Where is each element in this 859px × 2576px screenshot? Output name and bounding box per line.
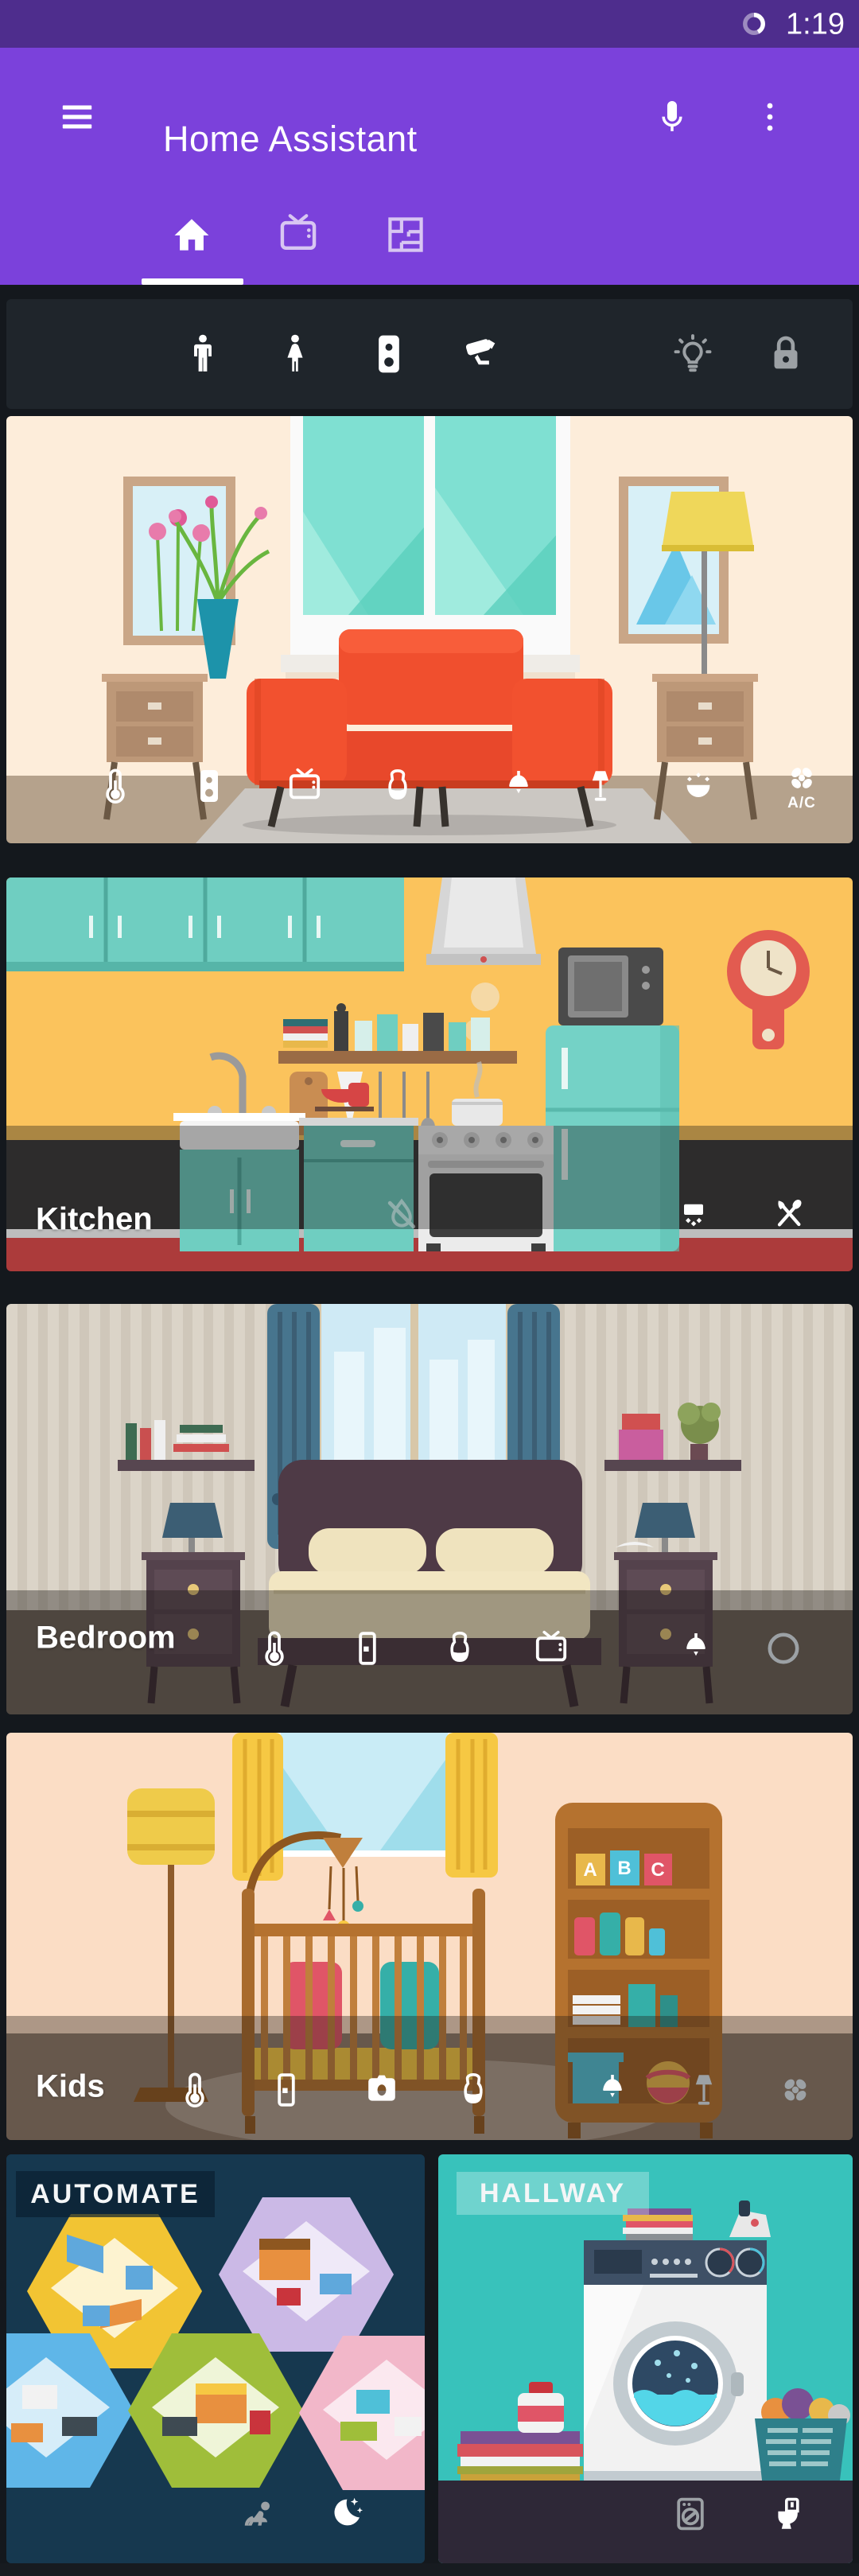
tv-icon[interactable] <box>286 767 324 805</box>
lock-icon[interactable] <box>764 332 808 376</box>
pendant-light-icon[interactable] <box>593 2071 632 2109</box>
thermometer-icon[interactable] <box>176 2071 214 2109</box>
person-female-icon[interactable] <box>273 332 317 376</box>
room-card-bedroom[interactable]: Bedroom <box>6 1304 853 1714</box>
ac-fan-icon[interactable]: A/C <box>783 760 821 820</box>
pendant-light-icon[interactable] <box>499 767 538 805</box>
thermometer-icon[interactable] <box>96 767 134 805</box>
fan-icon[interactable] <box>776 2071 814 2109</box>
kids-illustration <box>6 1733 853 2140</box>
pendant-light-icon[interactable] <box>677 1629 715 1667</box>
room-label: Kitchen <box>36 1202 153 1238</box>
smart-speaker-icon[interactable] <box>379 767 417 805</box>
tab-home[interactable] <box>169 212 214 257</box>
thermometer-icon[interactable] <box>255 1629 293 1667</box>
toilet-icon[interactable] <box>767 2495 805 2533</box>
entity-toolbar <box>6 299 853 409</box>
smart-speaker-icon[interactable] <box>454 2071 492 2109</box>
circle-outline-icon[interactable] <box>764 1629 803 1667</box>
card-automate[interactable]: AUTOMATE <box>6 2154 425 2563</box>
tv-icon[interactable] <box>532 1629 570 1667</box>
baby-icon[interactable] <box>238 2495 276 2533</box>
night-mode-icon[interactable] <box>326 2495 364 2533</box>
washing-machine-icon[interactable] <box>671 2495 709 2533</box>
room-label: Kids <box>36 2069 105 2105</box>
automate-banner: AUTOMATE <box>16 2171 215 2217</box>
status-time: 1:19 <box>786 8 845 42</box>
sensor-icon[interactable] <box>190 767 228 805</box>
microphone-icon[interactable] <box>652 97 692 137</box>
smart-speaker-icon[interactable] <box>441 1629 479 1667</box>
ac-label: A/C <box>783 795 821 812</box>
page-title: Home Assistant <box>163 119 418 160</box>
door-sensor-icon[interactable] <box>267 2071 305 2109</box>
room-card-living-room[interactable]: A/C <box>6 416 853 843</box>
cctv-camera-icon[interactable] <box>460 332 504 376</box>
range-hood-icon[interactable] <box>674 1196 713 1234</box>
sconce-light-icon[interactable] <box>679 767 717 805</box>
overflow-menu-icon[interactable] <box>751 98 789 136</box>
automate-label: AUTOMATE <box>30 2179 200 2210</box>
page-background <box>0 2563 859 2576</box>
room-card-kitchen[interactable]: Kitchen <box>6 877 853 1271</box>
tab-media[interactable] <box>276 212 321 257</box>
status-bar: 1:19 <box>0 0 859 48</box>
sensor-icon[interactable] <box>367 332 411 376</box>
cutlery-icon[interactable] <box>770 1196 808 1234</box>
lightbulb-icon[interactable] <box>670 332 715 376</box>
water-off-icon[interactable] <box>383 1196 421 1234</box>
hallway-label: HALLWAY <box>480 2178 626 2209</box>
tab-bar <box>0 196 859 285</box>
tab-floorplan[interactable] <box>383 212 428 257</box>
app-bar: Home Assistant <box>0 48 859 196</box>
floor-lamp-icon[interactable] <box>685 2071 723 2109</box>
room-label: Bedroom <box>36 1621 176 1656</box>
door-sensor-icon[interactable] <box>348 1629 387 1667</box>
tab-indicator <box>142 278 243 285</box>
person-male-icon[interactable] <box>181 332 225 376</box>
menu-icon[interactable] <box>56 96 98 138</box>
room-card-kids[interactable]: A B C Kids <box>6 1733 853 2140</box>
card-hallway[interactable]: HALLWAY <box>438 2154 853 2563</box>
data-saver-icon <box>740 10 768 38</box>
floor-lamp-icon[interactable] <box>581 767 620 805</box>
hallway-banner: HALLWAY <box>457 2172 649 2215</box>
camera-icon[interactable] <box>363 2071 401 2109</box>
